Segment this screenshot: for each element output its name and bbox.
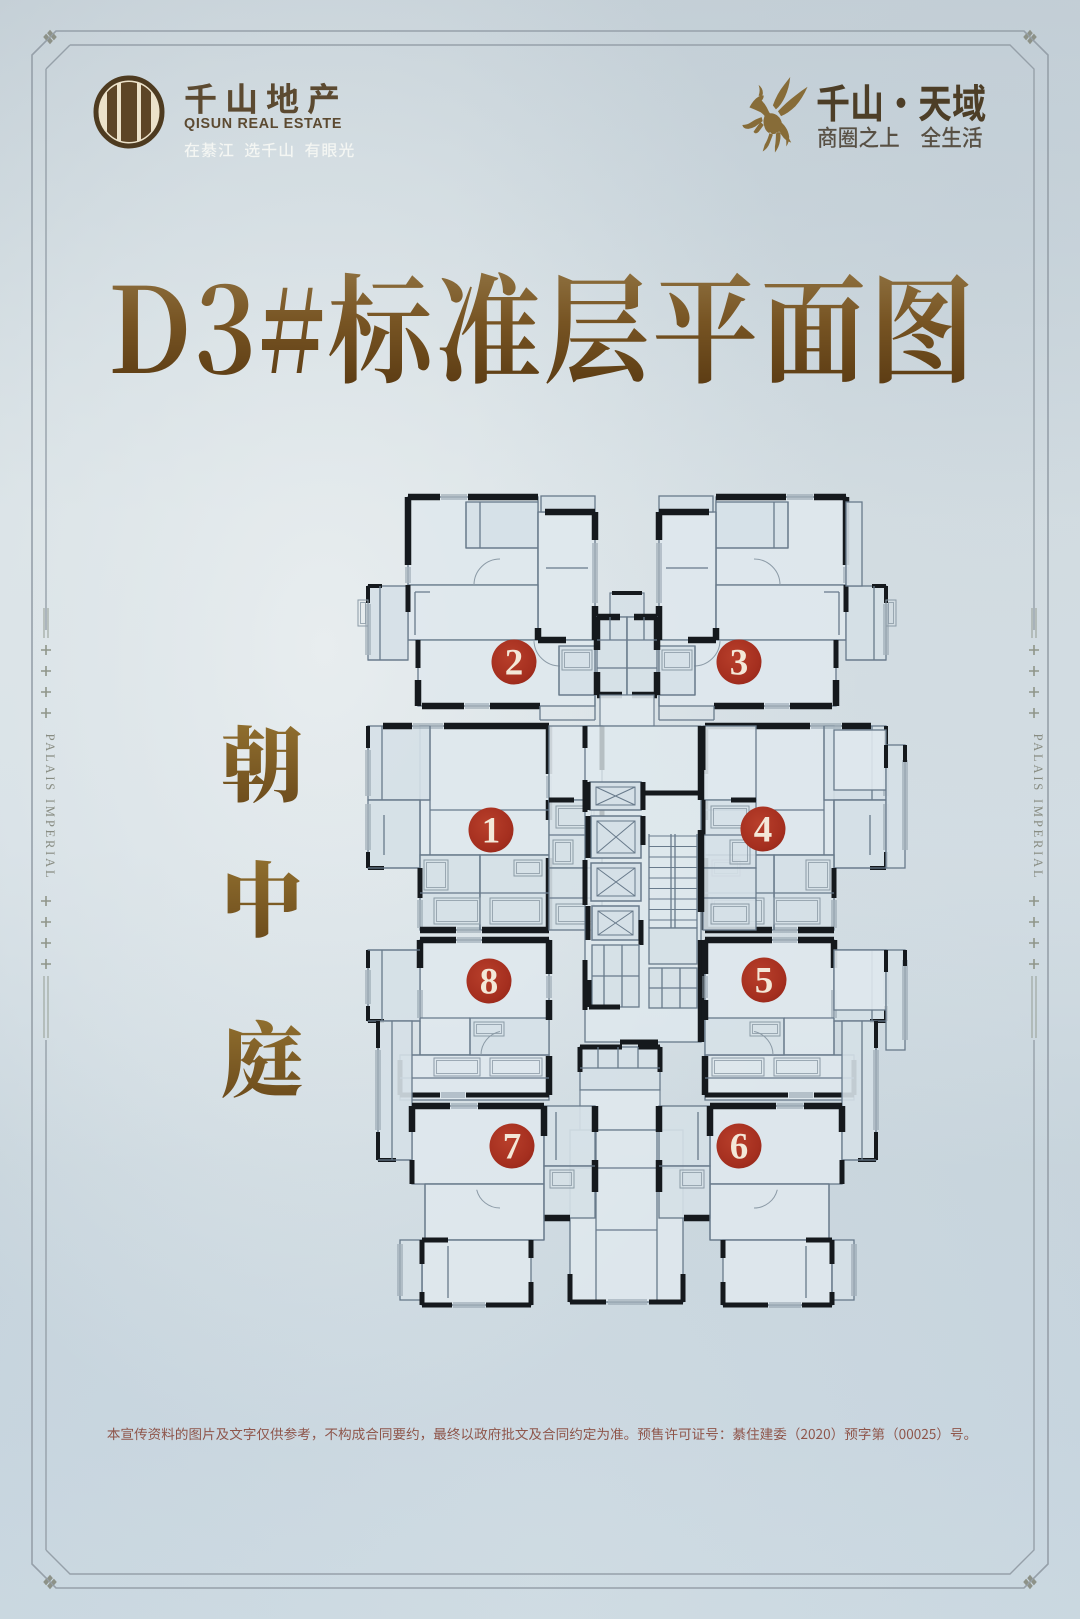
svg-text:PALAIS IMPERIAL: PALAIS IMPERIAL xyxy=(43,734,57,881)
svg-text:6: 6 xyxy=(730,1127,749,1168)
svg-text:2: 2 xyxy=(505,643,524,684)
svg-text:4: 4 xyxy=(754,810,773,851)
svg-text:7: 7 xyxy=(503,1127,522,1168)
svg-text:3: 3 xyxy=(730,643,749,684)
svg-text:PALAIS IMPERIAL: PALAIS IMPERIAL xyxy=(1031,734,1045,881)
svg-text:QISUN REAL ESTATE: QISUN REAL ESTATE xyxy=(184,116,342,132)
svg-text:1: 1 xyxy=(482,811,501,852)
svg-text:5: 5 xyxy=(755,961,774,1002)
svg-text:8: 8 xyxy=(480,962,499,1003)
